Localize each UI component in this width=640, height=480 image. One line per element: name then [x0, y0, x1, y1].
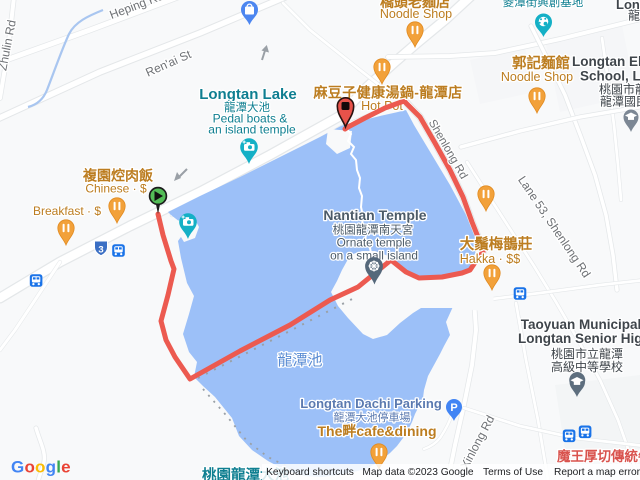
svg-text:P: P: [450, 402, 457, 414]
svg-text:Terms of Use: Terms of Use: [483, 467, 543, 478]
svg-text:Google: Google: [11, 458, 71, 477]
svg-text:3: 3: [98, 245, 103, 256]
svg-text:Map data ©2023 Google: Map data ©2023 Google: [362, 467, 473, 478]
svg-text:Report a map error: Report a map error: [554, 467, 640, 478]
svg-text:Keyboard shortcuts: Keyboard shortcuts: [266, 467, 354, 478]
